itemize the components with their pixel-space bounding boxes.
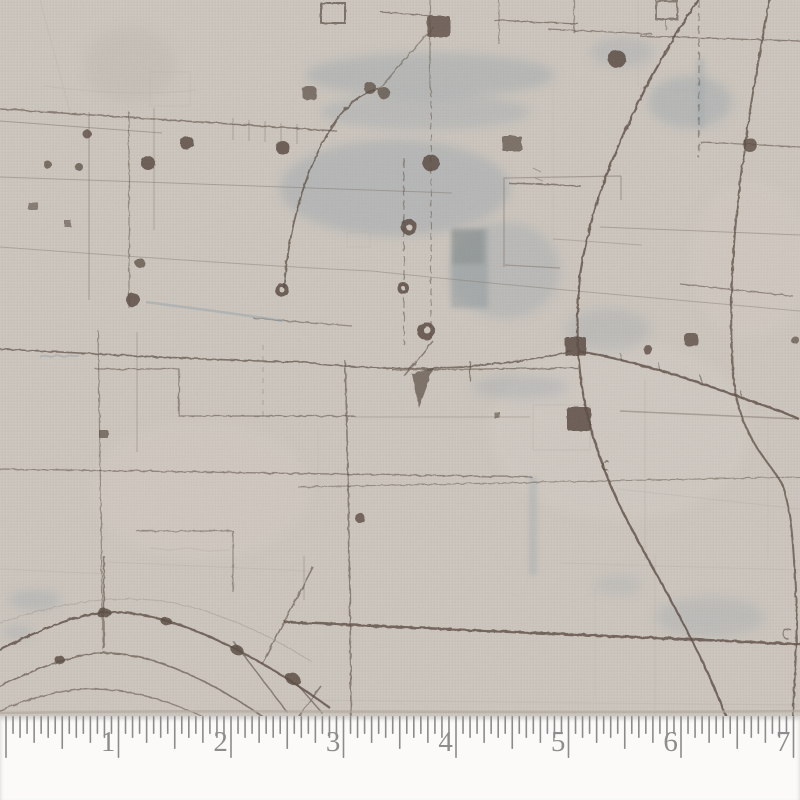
ruler-tick bbox=[406, 716, 408, 734]
ruler-tick bbox=[286, 716, 288, 749]
ruler-tick bbox=[272, 716, 274, 738]
ruler-tick bbox=[758, 716, 760, 734]
ruler-tick bbox=[40, 716, 42, 734]
ruler-tick bbox=[301, 716, 303, 738]
ruler-tick bbox=[125, 716, 127, 734]
ruler-number: 4 bbox=[438, 728, 453, 757]
ruler-tick bbox=[322, 716, 324, 734]
ruler-tick bbox=[413, 716, 415, 738]
fabric-swatch-photo: www.modafabrics.com www.modafabrics.com … bbox=[0, 0, 800, 800]
ruler-tick bbox=[5, 716, 7, 758]
ruler-tick bbox=[469, 716, 471, 738]
ruler-tick bbox=[33, 716, 35, 743]
ruler-tick bbox=[610, 716, 612, 738]
ruler-tick bbox=[209, 716, 211, 734]
ruler-tick bbox=[603, 716, 605, 734]
ruler-tick bbox=[624, 716, 626, 749]
ruler-tick bbox=[680, 716, 682, 758]
ruler-tick bbox=[357, 716, 359, 738]
ruler-tick bbox=[638, 716, 640, 738]
ruler-tick bbox=[420, 716, 422, 734]
ruler-tick bbox=[160, 716, 162, 738]
ruler-tick bbox=[343, 716, 345, 758]
ruler-ticks bbox=[0, 716, 800, 766]
ruler-tick bbox=[751, 716, 753, 738]
ruler-tick bbox=[575, 716, 577, 734]
ruler-tick bbox=[47, 716, 49, 738]
ruler-tick bbox=[455, 716, 457, 758]
ruler-tick bbox=[244, 716, 246, 738]
ruler-tick bbox=[694, 716, 696, 738]
ruler-tick bbox=[490, 716, 492, 734]
ruler-tick bbox=[12, 716, 14, 734]
ruler-tick bbox=[708, 716, 710, 743]
ruler-tick bbox=[729, 716, 731, 734]
ruler-tick bbox=[265, 716, 267, 734]
photo-grain bbox=[0, 0, 800, 716]
ruler-tick bbox=[596, 716, 598, 743]
ruler-tick bbox=[146, 716, 148, 743]
ruler-tick bbox=[230, 716, 232, 758]
ruler-number: 6 bbox=[663, 728, 678, 757]
ruler-tick bbox=[97, 716, 99, 734]
ruler-number: 7 bbox=[776, 728, 791, 757]
ruler-tick bbox=[132, 716, 134, 738]
ruler-tick bbox=[19, 716, 21, 738]
fabric-print-svg bbox=[0, 0, 800, 716]
ruler-tick bbox=[202, 716, 204, 743]
ruler-tick bbox=[385, 716, 387, 738]
selvage-ruler: www.modafabrics.com www.modafabrics.com bbox=[0, 716, 800, 800]
ruler-tick bbox=[533, 716, 535, 734]
ruler-number: 3 bbox=[326, 728, 341, 757]
ruler-tick bbox=[504, 716, 506, 734]
ruler-tick bbox=[237, 716, 239, 734]
ruler-tick bbox=[350, 716, 352, 734]
ruler-tick bbox=[90, 716, 92, 743]
ruler-tick bbox=[174, 716, 176, 749]
ruler-tick bbox=[743, 716, 745, 734]
ruler-tick bbox=[399, 716, 401, 749]
ruler-tick bbox=[659, 716, 661, 734]
ruler-tick bbox=[497, 716, 499, 738]
ruler-tick bbox=[392, 716, 394, 734]
ruler-tick bbox=[772, 716, 774, 734]
ruler-tick bbox=[476, 716, 478, 734]
ruler-tick bbox=[139, 716, 141, 734]
ruler-tick bbox=[181, 716, 183, 734]
ruler-tick bbox=[315, 716, 317, 743]
ruler-tick bbox=[715, 716, 717, 734]
ruler-tick bbox=[511, 716, 513, 749]
ruler-tick bbox=[68, 716, 70, 734]
ruler-tick bbox=[26, 716, 28, 734]
ruler-tick bbox=[645, 716, 647, 734]
ruler-tick bbox=[617, 716, 619, 734]
ruler-tick bbox=[76, 716, 78, 738]
ruler-tick bbox=[526, 716, 528, 738]
ruler-tick bbox=[701, 716, 703, 734]
ruler-tick bbox=[540, 716, 542, 743]
ruler-tick bbox=[188, 716, 190, 738]
ruler-tick bbox=[167, 716, 169, 734]
ruler-tick bbox=[293, 716, 295, 734]
ruler-tick bbox=[153, 716, 155, 734]
ruler-tick bbox=[118, 716, 120, 758]
ruler-tick bbox=[547, 716, 549, 734]
ruler-tick bbox=[765, 716, 767, 743]
ruler-tick bbox=[258, 716, 260, 743]
ruler-number: 2 bbox=[213, 728, 228, 757]
ruler-tick bbox=[279, 716, 281, 734]
ruler-tick bbox=[54, 716, 56, 734]
ruler-tick bbox=[83, 716, 85, 734]
ruler-tick bbox=[687, 716, 689, 734]
ruler-tick bbox=[251, 716, 253, 734]
ruler-number: 5 bbox=[551, 728, 566, 757]
ruler-tick bbox=[434, 716, 436, 734]
ruler-tick bbox=[568, 716, 570, 758]
ruler-tick bbox=[582, 716, 584, 738]
ruler-tick bbox=[462, 716, 464, 734]
ruler-tick bbox=[427, 716, 429, 743]
ruler-tick bbox=[61, 716, 63, 749]
ruler-tick bbox=[308, 716, 310, 734]
ruler-tick bbox=[364, 716, 366, 734]
ruler-tick bbox=[722, 716, 724, 738]
ruler-tick bbox=[518, 716, 520, 734]
ruler-tick bbox=[371, 716, 373, 743]
ruler-tick bbox=[793, 716, 795, 758]
ruler-tick bbox=[195, 716, 197, 734]
fabric-print bbox=[0, 0, 800, 716]
ruler-tick bbox=[589, 716, 591, 734]
ruler-number: 1 bbox=[101, 728, 116, 757]
ruler-tick bbox=[652, 716, 654, 743]
ruler-tick bbox=[378, 716, 380, 734]
ruler-tick bbox=[736, 716, 738, 749]
ruler-tick bbox=[631, 716, 633, 734]
ruler-tick bbox=[483, 716, 485, 743]
